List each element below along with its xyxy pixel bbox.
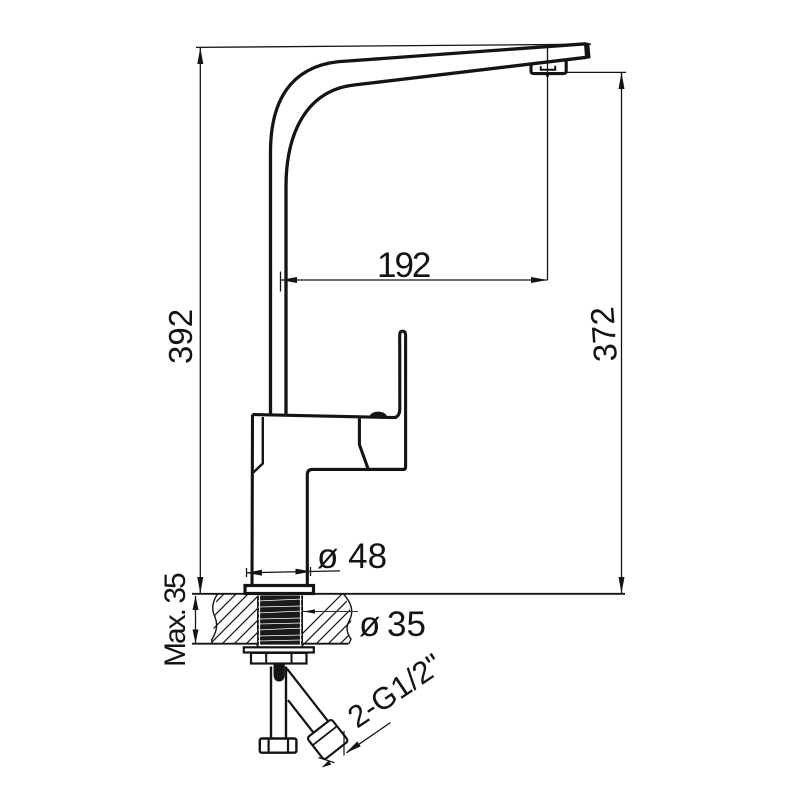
- svg-text:35: 35: [387, 605, 426, 644]
- svg-text:Max. 35: Max. 35: [159, 573, 192, 667]
- svg-text:ø: ø: [359, 605, 380, 644]
- svg-text:ø 48: ø 48: [317, 537, 387, 576]
- svg-text:192: 192: [377, 246, 430, 285]
- svg-text:392: 392: [162, 309, 199, 364]
- svg-text:2-G1/2": 2-G1/2": [341, 647, 448, 735]
- svg-text:372: 372: [583, 306, 624, 364]
